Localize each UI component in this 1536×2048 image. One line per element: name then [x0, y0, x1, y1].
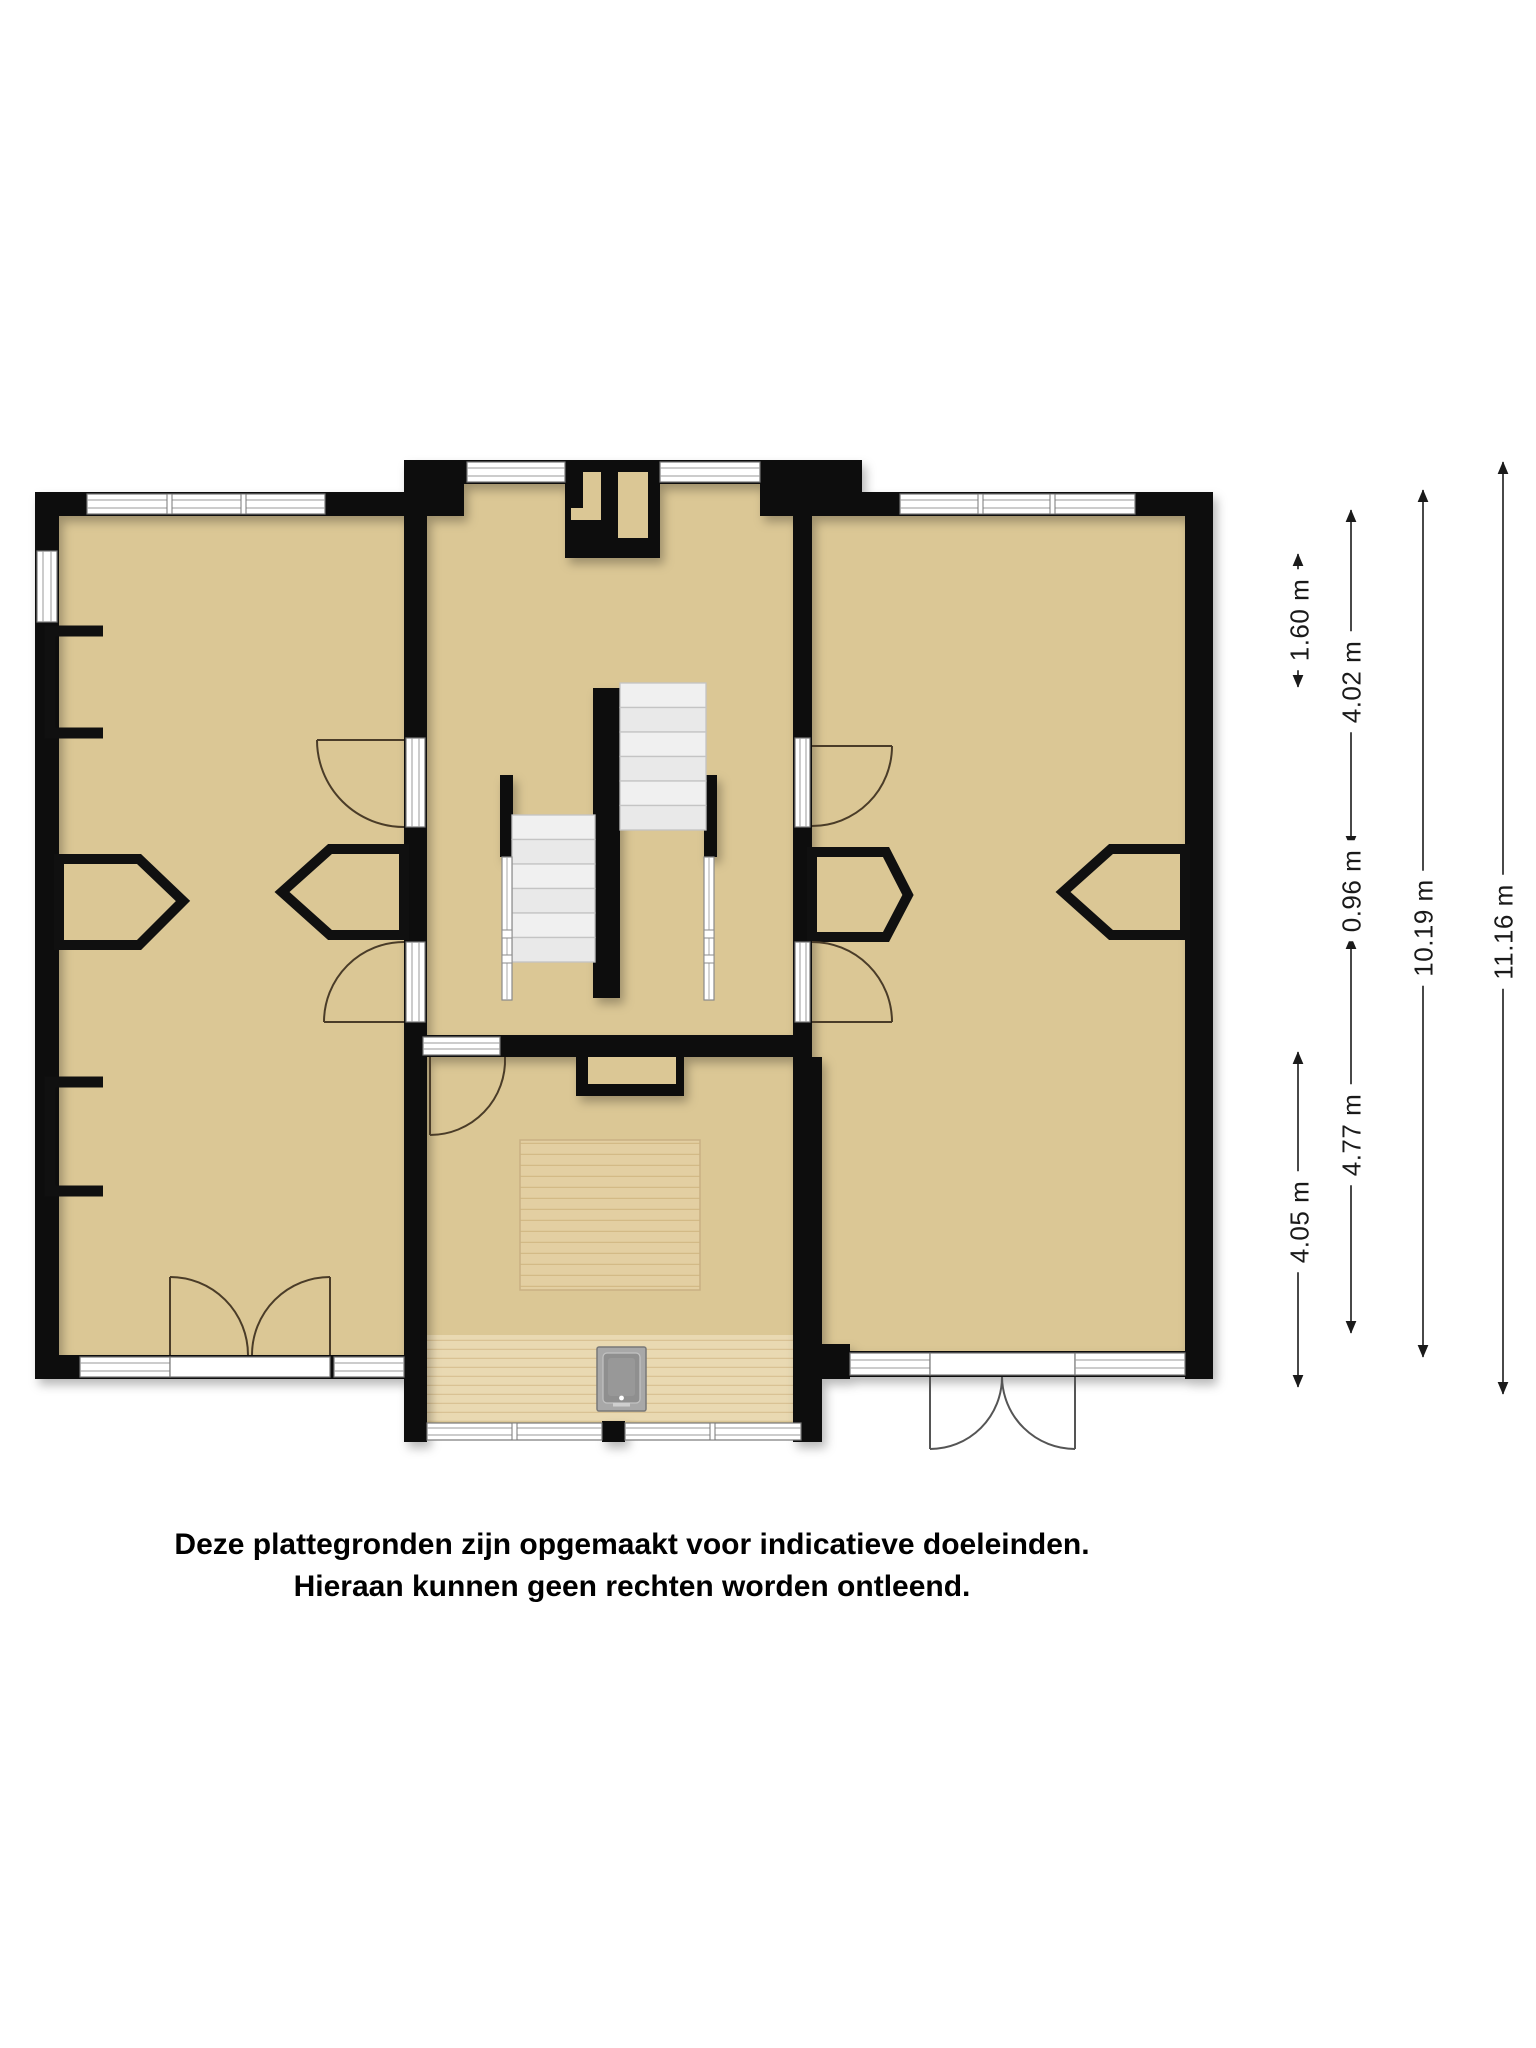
stair-flight-lower [512, 815, 595, 962]
wall-bottomroom-pier2 [602, 1421, 625, 1442]
window-right-top [900, 494, 1135, 514]
dining-table [520, 1140, 700, 1290]
wall-bottomroom-pier1 [404, 1421, 427, 1442]
door-opening-right-bottom [930, 1353, 1075, 1375]
door-swing-french-right-room [930, 1377, 1075, 1449]
dimension-label: 4.02 m [1336, 632, 1369, 733]
disclaimer-line-2: Hieraan kunnen geen rechten worden ontle… [0, 1566, 1264, 1608]
door-frame-hall-bottom [423, 1037, 500, 1055]
wall-bottomroom-pier3 [801, 1421, 822, 1442]
floorplan-page: 1.60 m 4.05 m 4.02 m 0.96 m 4.77 m 10.19… [0, 0, 1536, 2048]
window-left-bottom-2 [334, 1357, 404, 1377]
window-porch-2 [625, 1423, 801, 1440]
disclaimer-line-1: Deze plattegronden zijn opgemaakt voor i… [0, 1524, 1264, 1566]
door-frame-left-upper [406, 738, 425, 827]
window-hall-top-2 [660, 462, 760, 482]
door-frame-right-lower [795, 942, 810, 1022]
window-porch-1 [427, 1423, 602, 1440]
wall-bottomroom-right [793, 1057, 822, 1442]
dimension-label: 11.16 m [1488, 875, 1521, 989]
dimension-label: 4.77 m [1336, 1085, 1369, 1186]
stair-flight-upper [620, 683, 706, 830]
dimension-lines [1298, 462, 1503, 1394]
bay-niche-right-inner [812, 852, 908, 937]
window-left-bottom-1 [80, 1357, 170, 1377]
floorplan-drawing [0, 0, 1536, 2048]
wall-stair-spine [593, 688, 620, 998]
window-right-bottom-1 [850, 1353, 930, 1375]
window-left-top [87, 494, 325, 514]
window-left-side [37, 551, 57, 622]
window-hall-top-1 [467, 462, 565, 482]
door-frame-right-upper [795, 738, 810, 827]
door-frame-left-lower [406, 942, 425, 1022]
wall-hall-topleft-block [404, 460, 464, 516]
dimension-label: 10.19 m [1408, 870, 1441, 985]
window-right-bottom-2 [1075, 1353, 1185, 1375]
disclaimer-text: Deze plattegronden zijn opgemaakt voor i… [0, 1524, 1264, 1608]
dimension-label: 0.96 m [1336, 841, 1369, 942]
stove-icon [597, 1347, 646, 1411]
dimension-label: 1.60 m [1284, 570, 1317, 671]
door-opening-left-bottom [170, 1357, 330, 1377]
wall-stair-stub-left [500, 775, 513, 857]
dimension-label: 4.05 m [1284, 1172, 1317, 1273]
